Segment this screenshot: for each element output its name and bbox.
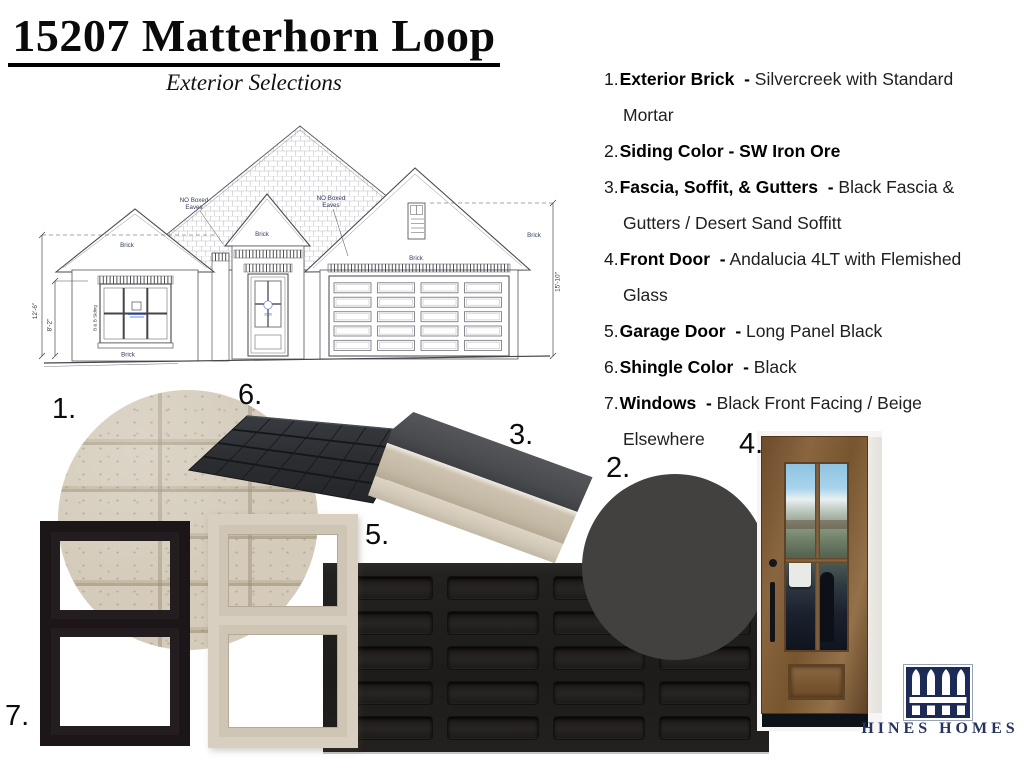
reflection-person-silhouette — [820, 572, 834, 642]
front-door-drawing: 3080 — [248, 274, 288, 356]
garage-panel — [659, 716, 751, 740]
selection-number: 5. — [604, 321, 620, 341]
selection-number: 7. — [604, 393, 620, 413]
selection-number: 3. — [604, 177, 620, 197]
dim-12-6: 12'-6" — [32, 303, 39, 319]
header: 15207 Matterhorn Loop Exterior Selection… — [8, 12, 500, 96]
dim-15-10: 15'-10" — [555, 272, 562, 292]
garage-panel — [447, 576, 539, 600]
page-title: 15207 Matterhorn Loop — [8, 12, 499, 67]
selection-value: Black — [749, 357, 797, 377]
window-meeting-rail — [219, 616, 347, 625]
shingle-sample-number: 6. — [238, 379, 262, 412]
garage-panel — [553, 646, 645, 670]
selection-item: 4.Front Door - Andalucia 4LT with Flemis… — [604, 241, 1008, 313]
selection-item: 6.Shingle Color - Black — [604, 349, 1008, 385]
selection-item: 2.Siding Color - SW Iron Ore — [604, 133, 1008, 169]
selection-number: 1. — [604, 69, 620, 89]
selection-label: Shingle Color - — [620, 357, 749, 377]
window-upper-sash — [219, 525, 347, 616]
selection-item: 3.Fascia, Soffit, & Gutters - Black Fasc… — [604, 169, 1008, 241]
selection-number: 2. — [604, 141, 620, 161]
window-meeting-rail — [51, 619, 179, 628]
front-door-sample-photo — [757, 431, 882, 731]
hines-homes-logo-icon — [903, 664, 973, 721]
paint-sample-number: 2. — [606, 452, 630, 485]
selection-item: 5.Garage Door - Long Panel Black — [604, 313, 1008, 349]
door-bottom-panel — [788, 664, 845, 700]
garage-panel — [447, 646, 539, 670]
brick-label: Brick — [121, 352, 136, 359]
dim-8-2: 8'-2" — [47, 319, 54, 332]
paint-sample-swatch — [582, 474, 768, 660]
selection-label: Front Door - — [620, 249, 726, 269]
gutter-sample-number: 3. — [509, 419, 533, 452]
house-elevation-drawing: 3080 12'-6" 8'-2" 15'-10" NO BoxedEav — [28, 106, 588, 378]
door-sample-number: 4. — [739, 428, 763, 461]
reflection-truck — [789, 560, 811, 587]
garage-sample-number: 5. — [365, 519, 389, 552]
selection-label: Windows - — [620, 393, 712, 413]
door-wall-background — [866, 437, 882, 713]
selection-label: Siding Color - SW Iron Ore — [620, 141, 841, 161]
brick-label: Brick — [527, 232, 542, 239]
brick-label: Brick — [255, 231, 270, 238]
page-subtitle: Exterior Selections — [8, 70, 500, 96]
garage-panel — [447, 681, 539, 705]
selection-item: 7.Windows - Black Front Facing / Beige E… — [604, 385, 1008, 457]
door-deadbolt — [769, 559, 777, 567]
hines-homes-wordmark: HINES HOMES — [853, 720, 1024, 738]
garage-panel — [447, 611, 539, 635]
brick-label: Brick — [120, 242, 135, 249]
window-upper-sash — [51, 532, 179, 619]
window-lower-sash — [51, 628, 179, 735]
door-size-label: 3080 — [264, 313, 272, 317]
brick-sample-number: 1. — [52, 393, 76, 426]
garage-panel — [447, 716, 539, 740]
selections-list: 1.Exterior Brick - Silvercreek with Stan… — [604, 61, 1008, 457]
selection-label: Garage Door - — [620, 321, 742, 341]
selection-item: 1.Exterior Brick - Silvercreek with Stan… — [604, 61, 1008, 133]
door-muntin-vertical — [815, 464, 820, 650]
selection-number: 4. — [604, 249, 620, 269]
window-sample-number: 7. — [5, 700, 29, 733]
selection-number: 6. — [604, 357, 620, 377]
bb-siding-label: B & B Siding — [93, 305, 98, 331]
beige-window-sample — [208, 514, 358, 748]
black-window-sample — [40, 521, 190, 746]
window-lower-sash — [219, 625, 347, 737]
mid-wall — [212, 253, 229, 361]
selection-value: Long Panel Black — [741, 321, 882, 341]
brick-label: Brick — [409, 255, 424, 262]
door-glass — [784, 462, 849, 652]
selection-label: Fascia, Soffit, & Gutters - — [620, 177, 834, 197]
door-handle — [770, 582, 775, 642]
garage-panel — [553, 716, 645, 740]
selection-label: Exterior Brick - — [620, 69, 750, 89]
gutter-sample-swatch — [368, 407, 593, 565]
garage-panel — [659, 681, 751, 705]
selections-sheet: 15207 Matterhorn Loop Exterior Selection… — [0, 0, 1024, 768]
left-window-drawing — [98, 284, 173, 348]
garage-panel — [553, 681, 645, 705]
door-muntin-horizontal — [786, 558, 847, 563]
